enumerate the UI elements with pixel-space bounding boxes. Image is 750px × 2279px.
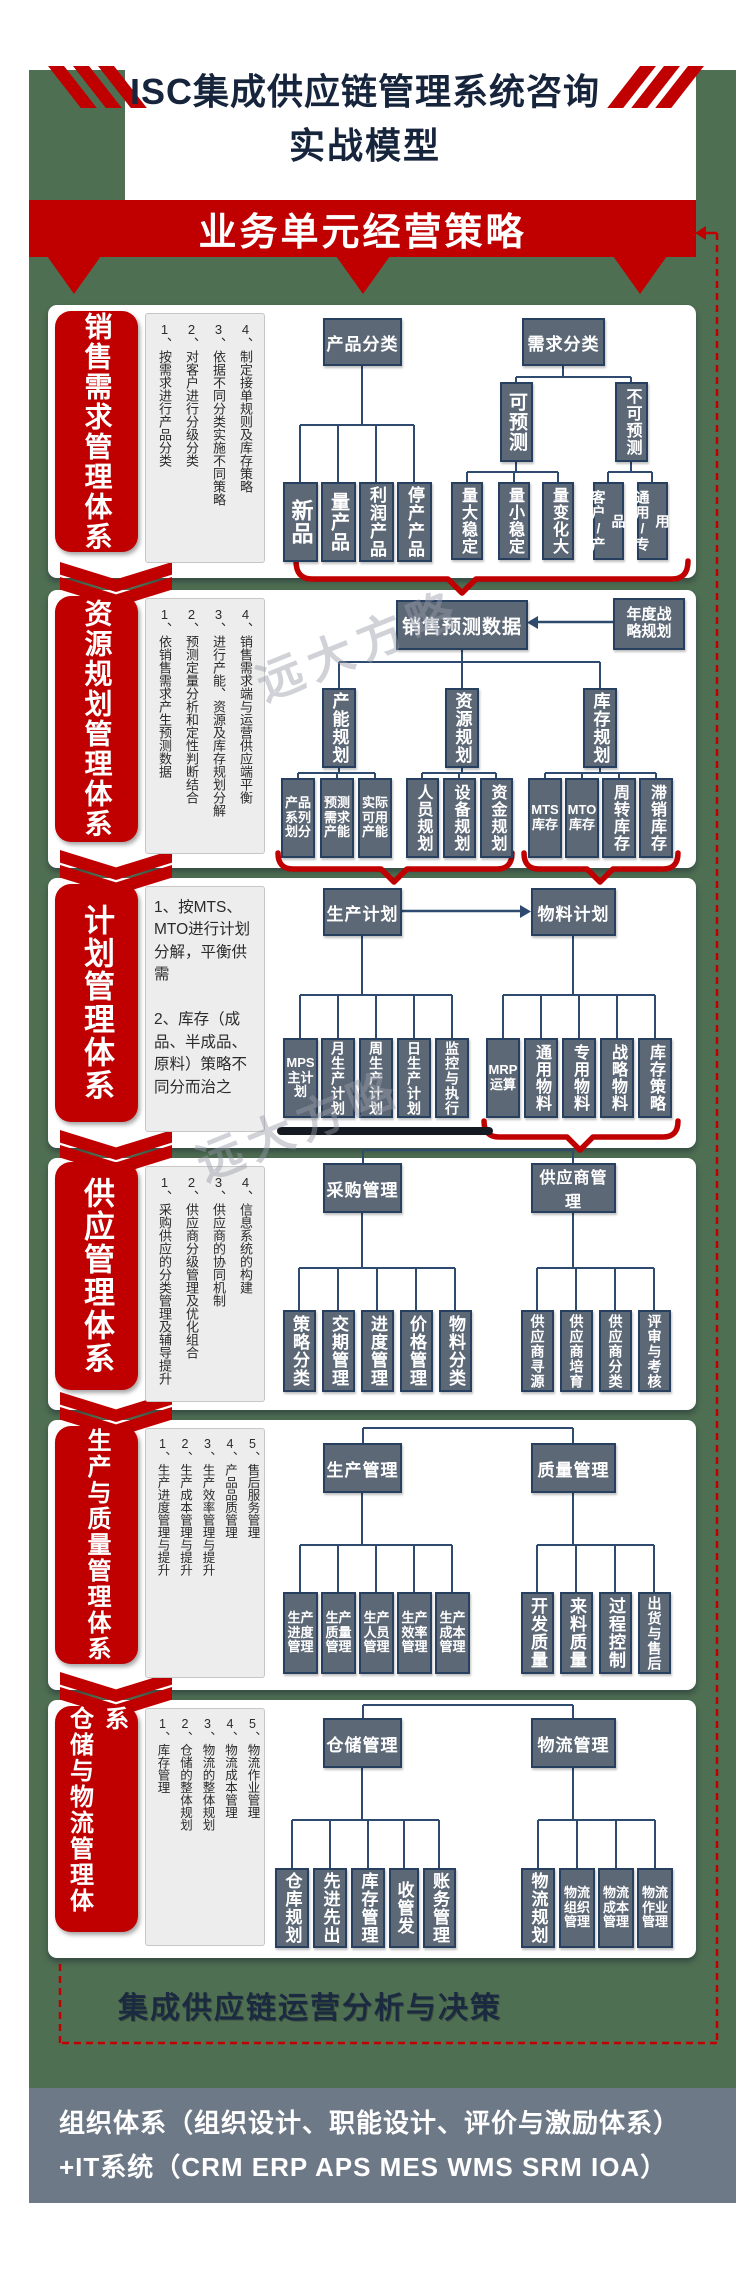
node-production-mgmt: 生产管理 <box>323 1443 402 1493</box>
node: 实际 可用 产能 <box>358 778 392 858</box>
down-triangle-icon <box>613 256 667 294</box>
node: 物料分类 <box>439 1310 472 1392</box>
down-triangle-icon <box>336 256 390 294</box>
node: 通用/专用 <box>637 482 668 560</box>
node: 量小稳定 <box>498 482 530 560</box>
node: 战略物料 <box>600 1038 634 1118</box>
node: 设备规划 <box>443 778 476 858</box>
note-item: 3、进行产能、资源及库存规划分解 <box>205 607 232 845</box>
node-annual-strategic-plan: 年度战 略规划 <box>613 598 685 650</box>
node: 价格管理 <box>400 1310 433 1392</box>
node: 供应商分类 <box>599 1310 632 1392</box>
node: MPS 主计 划 <box>283 1038 318 1118</box>
note-item: 4、物流成本管理 <box>219 1717 242 1937</box>
node: 生产 效率 管理 <box>397 1592 432 1674</box>
note-item: 3、依据不同分类实施不同策略 <box>205 322 232 554</box>
note-item: 3、供应商的协同机制 <box>205 1175 232 1393</box>
node-quality-mgmt: 质量管理 <box>531 1443 616 1493</box>
node: 库存策略 <box>638 1038 672 1118</box>
pill-resource-planning: 资源规划管理体系 <box>55 596 138 842</box>
node: 新品 <box>283 482 318 562</box>
note-item: 5、物流作业管理 <box>241 1717 264 1937</box>
note-item: 3、物流的整体规划 <box>196 1717 219 1937</box>
note-item: 3、生产效率管理与提升 <box>196 1437 219 1669</box>
note-item: 2、供应商分级管理及优化组合 <box>178 1175 205 1393</box>
node: 出货与售后 <box>638 1592 671 1674</box>
note-item: 5、售后服务管理 <box>241 1437 264 1669</box>
notes-warehouse-logistics: 1、库存管理 2、仓储的整体规划 3、物流的整体规划 4、物流成本管理 5、物流… <box>145 1708 265 1946</box>
node: 过程控制 <box>599 1592 632 1674</box>
pill-production-quality: 生产与质量管理体系 <box>55 1426 138 1664</box>
note-item: 1、采购供应的分类管理及辅导提升 <box>151 1175 178 1393</box>
node-resource-planning: 资源规划 <box>445 688 479 768</box>
node: 物流规划 <box>521 1868 555 1948</box>
pill-supply: 供应管理体系 <box>55 1162 138 1390</box>
poster-page: ISC集成供应链管理系统咨询 实战模型 业务单元经营策略 销售需求管理体系 资源… <box>0 0 750 2279</box>
node: 收管发 <box>389 1868 419 1948</box>
node-logistics-mgmt: 物流管理 <box>531 1718 616 1768</box>
node: 开发质量 <box>521 1592 554 1674</box>
node: 专用物料 <box>562 1038 596 1118</box>
node: MRP 运算 <box>486 1038 520 1118</box>
node: 评审与考核 <box>638 1310 671 1392</box>
notes-production-quality: 1、生产进度管理与提升 2、生产成本管理与提升 3、生产效率管理与提升 4、产品… <box>145 1428 265 1678</box>
node: 月生产计划 <box>321 1038 355 1118</box>
page-title: ISC集成供应链管理系统咨询 实战模型 <box>125 72 605 166</box>
node: 生产 人员 管理 <box>359 1592 394 1674</box>
node: MTS 库存 <box>528 778 562 858</box>
note-item: 1、按需求进行产品分类 <box>151 322 178 554</box>
note-item: 1、生产进度管理与提升 <box>151 1437 174 1669</box>
node: 生产 成本 管理 <box>435 1592 470 1674</box>
node: 利润产品 <box>359 482 394 562</box>
decision-title: 集成供应链运营分析与决策 <box>40 1983 580 2027</box>
pill-warehouse-logistics: 仓储与物流管理体系 <box>55 1706 138 1932</box>
footer-line-2: +IT系统（CRM ERP APS MES WMS SRM IOA） <box>59 2145 736 2189</box>
node: 周转库存 <box>602 778 636 858</box>
node: 资金规划 <box>480 778 513 858</box>
node: 预测 需求 产能 <box>320 778 354 858</box>
pill-sales-demand: 销售需求管理体系 <box>55 311 138 552</box>
notes-resource-planning: 1、依销售需求产生预测数据 2、预测定量分析和定性判断结合 3、进行产能、资源及… <box>145 598 265 854</box>
node: 周生产计划 <box>359 1038 393 1118</box>
down-triangle-icon <box>47 256 101 294</box>
node: 量大稳定 <box>451 482 483 560</box>
node: 生产 进度 管理 <box>283 1592 318 1674</box>
node: 监控与执行 <box>435 1038 469 1118</box>
node: 滞销库存 <box>639 778 673 858</box>
node: 停产产品 <box>397 482 432 562</box>
node: 物流 作业 管理 <box>637 1868 673 1948</box>
node-sales-forecast-data: 销售预测数据 <box>396 600 528 650</box>
node: 进度管理 <box>361 1310 394 1392</box>
note-item: 1、库存管理 <box>151 1717 174 1937</box>
node-product-classification: 产品分类 <box>323 318 402 366</box>
node: 量变化大 <box>542 482 574 560</box>
node: 库存管理 <box>351 1868 385 1948</box>
node-forecastable: 可预测 <box>500 382 533 462</box>
title-line-1: ISC集成供应链管理系统咨询 <box>125 72 605 112</box>
node: 账务管理 <box>423 1868 456 1948</box>
node-production-plan: 生产计划 <box>323 888 402 936</box>
node: 生产 质量 管理 <box>321 1592 356 1674</box>
node: 物流 成本 管理 <box>598 1868 634 1948</box>
node: 通用物料 <box>524 1038 558 1118</box>
notes-supply: 1、采购供应的分类管理及辅导提升 2、供应商分级管理及优化组合 3、供应商的协同… <box>145 1166 265 1402</box>
node: 策略分类 <box>283 1310 316 1392</box>
note-item: 4、销售需求端与运营供应端平衡 <box>232 607 259 845</box>
node: 物流 组织 管理 <box>559 1868 595 1948</box>
node-inventory-planning: 库存规划 <box>583 688 617 768</box>
node: 量产品 <box>321 482 356 562</box>
node: 仓库规划 <box>275 1868 309 1948</box>
node-procurement-mgmt: 采购管理 <box>323 1163 402 1213</box>
note-item: 2、对客户进行分级分类 <box>178 322 205 554</box>
node-material-plan: 物料计划 <box>531 888 616 936</box>
notes-planning: 1、按MTS、MTO进行计划分解，平衡供需 2、库存（成品、半成品、原料）策略不… <box>145 886 265 1132</box>
footer-bar: 组织体系（组织设计、职能设计、评价与激励体系） +IT系统（CRM ERP AP… <box>29 2088 736 2203</box>
node: MTO 库存 <box>565 778 599 858</box>
note-item: 4、信息系统的构建 <box>232 1175 259 1393</box>
node: 交期管理 <box>322 1310 355 1392</box>
notes-sales-demand: 1、按需求进行产品分类 2、对客户进行分级分类 3、依据不同分类实施不同策略 4… <box>145 313 265 563</box>
note-item: 2、仓储的整体规划 <box>174 1717 197 1937</box>
node: 人员规划 <box>406 778 439 858</box>
note-item: 1、依销售需求产生预测数据 <box>151 607 178 845</box>
node-warehouse-mgmt: 仓储管理 <box>323 1718 402 1768</box>
node: 日生产计划 <box>397 1038 431 1118</box>
node-unforecastable: 不可预测 <box>615 382 648 462</box>
strategy-banner: 业务单元经营策略 <box>29 200 696 257</box>
node: 客户/产品 <box>593 482 624 560</box>
note-item: 4、产品品质管理 <box>219 1437 242 1669</box>
node: 来料质量 <box>560 1592 593 1674</box>
node-capacity-planning: 产能规划 <box>322 688 356 768</box>
title-line-2: 实战模型 <box>125 126 605 166</box>
node-supplier-mgmt: 供应商管理 <box>531 1163 616 1213</box>
pill-planning: 计划管理体系 <box>55 884 138 1122</box>
note-item: 2、生产成本管理与提升 <box>174 1437 197 1669</box>
node: 供应商寻源 <box>521 1310 554 1392</box>
note-item: 4、制定接单规则及库存策略 <box>232 322 259 554</box>
node-demand-classification: 需求分类 <box>522 318 605 366</box>
node: 供应商培育 <box>560 1310 593 1392</box>
footer-line-1: 组织体系（组织设计、职能设计、评价与激励体系） <box>59 2101 736 2145</box>
node: 先进先出 <box>313 1868 347 1948</box>
note-item: 2、预测定量分析和定性判断结合 <box>178 607 205 845</box>
node: 产品 系列 划分 <box>281 778 315 858</box>
